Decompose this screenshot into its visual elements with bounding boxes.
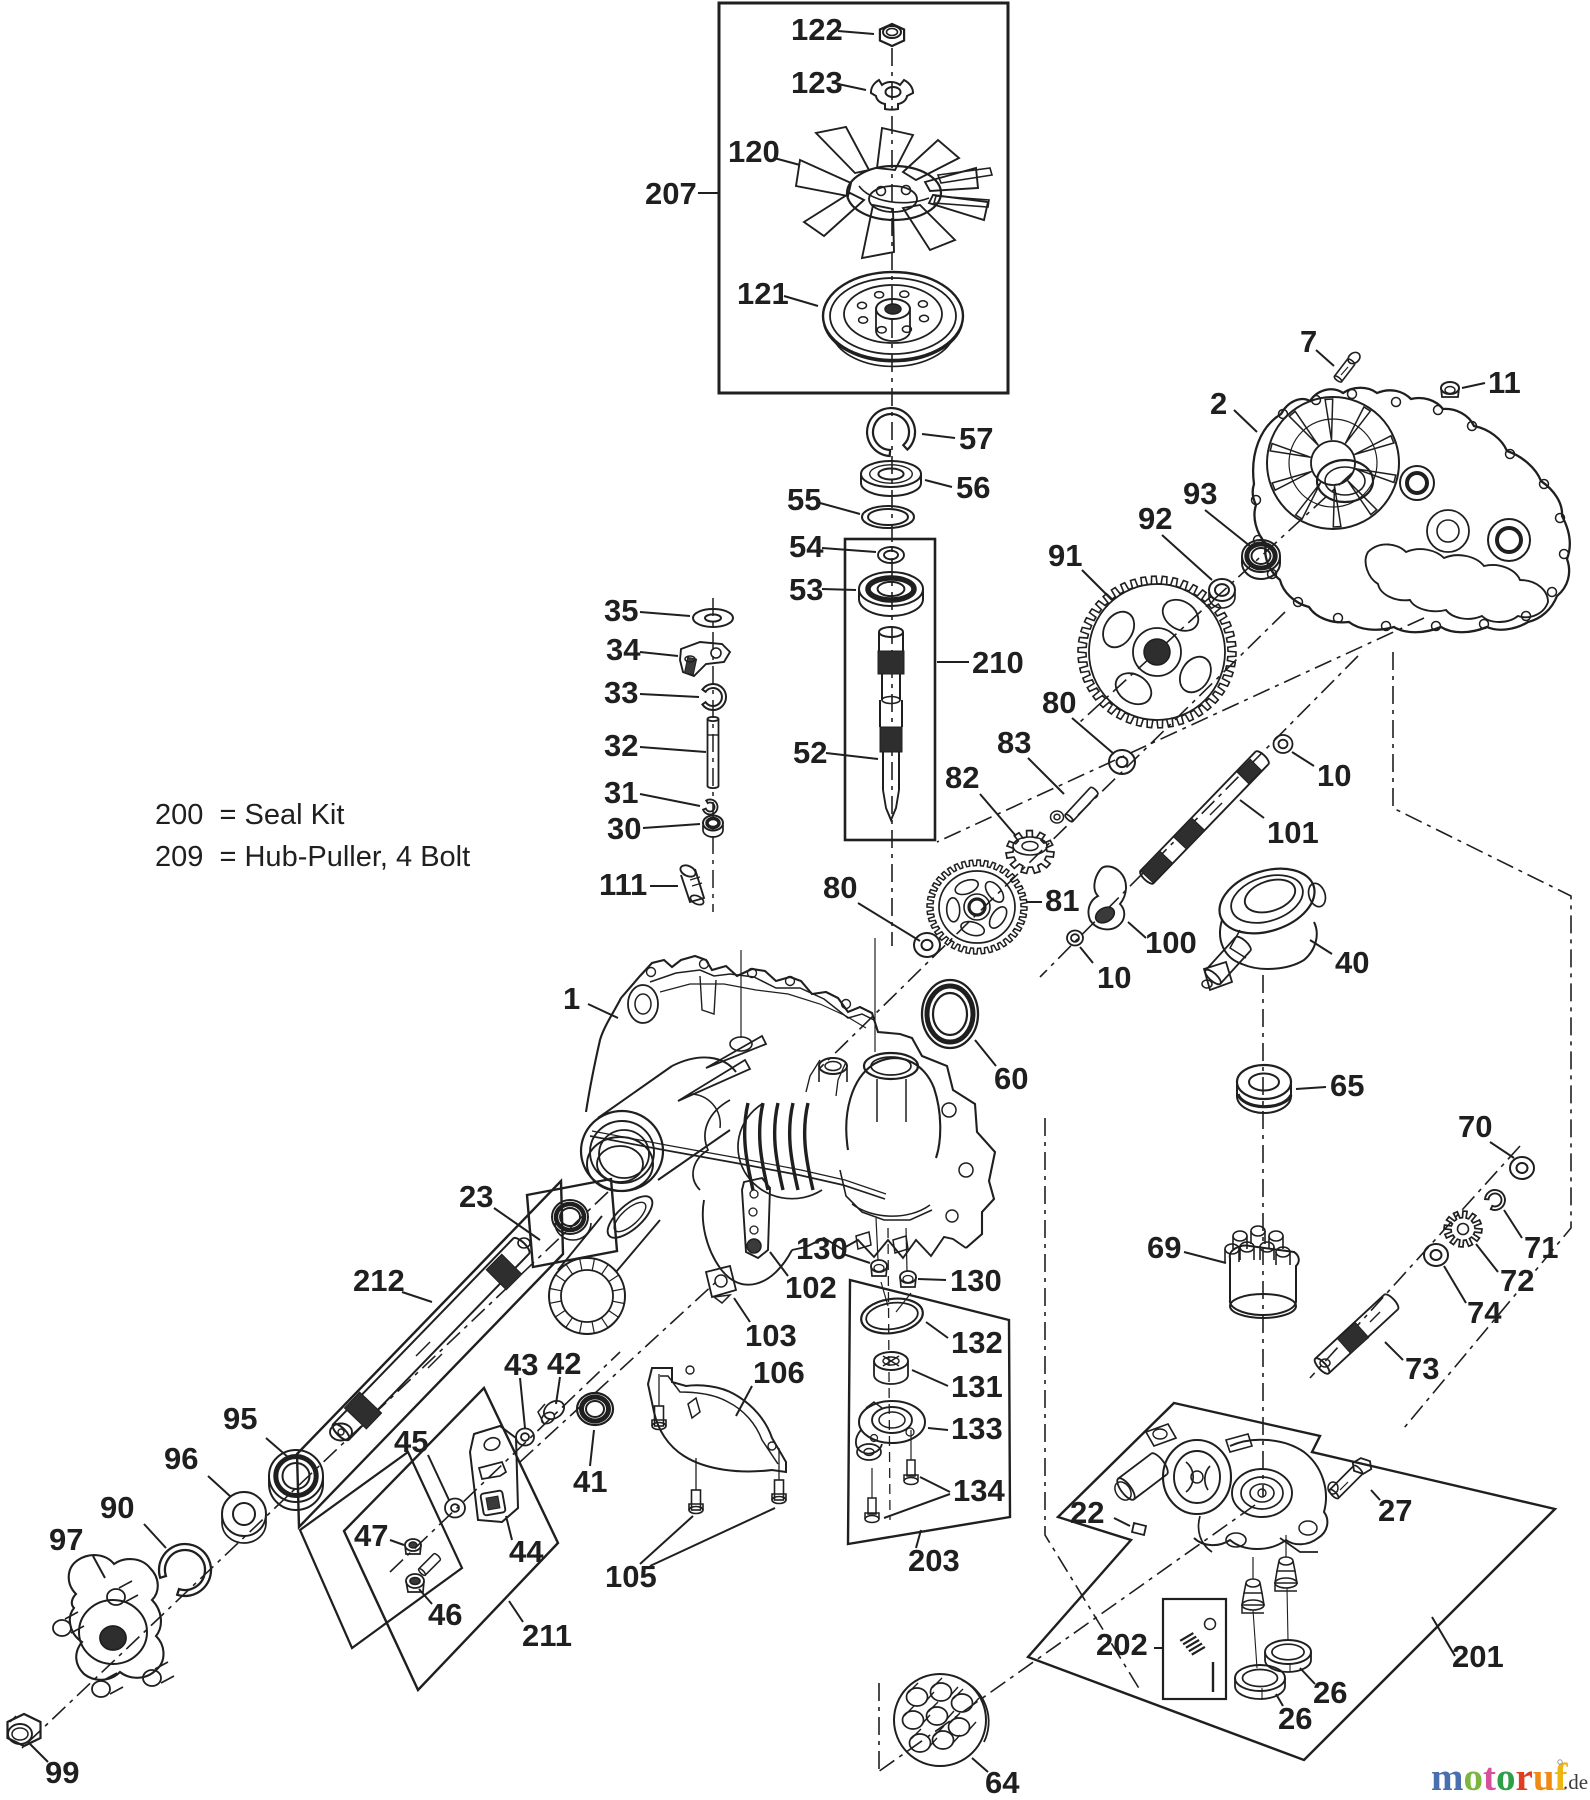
svg-text:7: 7 <box>1300 324 1317 359</box>
svg-text:131: 131 <box>951 1369 1003 1404</box>
svg-text:103: 103 <box>745 1318 797 1353</box>
svg-text:121: 121 <box>737 276 789 311</box>
svg-text:40: 40 <box>1335 945 1369 980</box>
svg-text:105: 105 <box>605 1559 657 1594</box>
svg-text:90: 90 <box>100 1490 134 1525</box>
svg-text:202: 202 <box>1096 1627 1148 1662</box>
svg-text:53: 53 <box>789 572 823 607</box>
svg-text:203: 203 <box>908 1543 960 1578</box>
svg-text:132: 132 <box>951 1325 1003 1360</box>
svg-text:26: 26 <box>1278 1701 1312 1736</box>
svg-text:23: 23 <box>459 1179 493 1214</box>
svg-text:42: 42 <box>547 1346 581 1381</box>
svg-text:100: 100 <box>1145 925 1197 960</box>
svg-text:209 = Hub-Puller, 4 Bolt: 209 = Hub-Puller, 4 Bolt <box>155 841 470 873</box>
svg-text:32: 32 <box>604 728 638 763</box>
svg-text:65: 65 <box>1330 1068 1364 1103</box>
svg-text:11: 11 <box>1488 365 1521 400</box>
svg-text:47: 47 <box>354 1518 388 1553</box>
svg-text:60: 60 <box>994 1061 1028 1096</box>
svg-text:102: 102 <box>785 1270 837 1305</box>
svg-text:35: 35 <box>604 593 638 628</box>
svg-text:71: 71 <box>1524 1230 1558 1265</box>
svg-text:31: 31 <box>604 775 638 810</box>
svg-text:83: 83 <box>997 725 1031 760</box>
svg-text:134: 134 <box>953 1473 1005 1508</box>
svg-text:73: 73 <box>1405 1351 1439 1386</box>
svg-text:34: 34 <box>606 632 641 667</box>
svg-text:210: 210 <box>972 645 1024 680</box>
svg-text:130: 130 <box>796 1231 848 1266</box>
svg-text:96: 96 <box>164 1441 198 1476</box>
svg-text:30: 30 <box>607 811 641 846</box>
svg-text:72: 72 <box>1500 1263 1534 1298</box>
svg-text:74: 74 <box>1467 1295 1502 1330</box>
svg-text:80: 80 <box>1042 685 1076 720</box>
svg-text:91: 91 <box>1048 538 1082 573</box>
svg-text:95: 95 <box>223 1401 257 1436</box>
svg-text:93: 93 <box>1183 476 1217 511</box>
svg-text:80: 80 <box>823 870 857 905</box>
svg-text:111: 111 <box>599 867 647 902</box>
svg-text:106: 106 <box>753 1355 805 1390</box>
svg-text:101: 101 <box>1267 815 1319 850</box>
svg-text:.de: .de <box>1563 1770 1588 1794</box>
svg-text:44: 44 <box>509 1534 544 1569</box>
svg-text:200 = Seal Kit: 200 = Seal Kit <box>155 799 344 831</box>
svg-text:120: 120 <box>728 134 780 169</box>
svg-text:motoruf: motoruf <box>1431 1756 1569 1799</box>
svg-text:92: 92 <box>1138 501 1172 536</box>
svg-text:70: 70 <box>1458 1109 1492 1144</box>
svg-text:130: 130 <box>950 1263 1002 1298</box>
svg-text:57: 57 <box>959 421 993 456</box>
svg-text:81: 81 <box>1045 883 1079 918</box>
svg-text:97: 97 <box>49 1522 83 1557</box>
svg-text:41: 41 <box>573 1464 607 1499</box>
svg-text:207: 207 <box>645 176 697 211</box>
svg-text:54: 54 <box>789 529 824 564</box>
svg-text:43: 43 <box>504 1347 538 1382</box>
svg-text:82: 82 <box>945 760 979 795</box>
svg-text:52: 52 <box>793 735 827 770</box>
svg-text:99: 99 <box>45 1755 79 1790</box>
svg-text:133: 133 <box>951 1411 1003 1446</box>
svg-text:22: 22 <box>1070 1495 1104 1530</box>
svg-text:33: 33 <box>604 675 638 710</box>
svg-text:55: 55 <box>787 482 821 517</box>
svg-text:211: 211 <box>522 1618 572 1653</box>
svg-text:26: 26 <box>1313 1675 1347 1710</box>
svg-text:212: 212 <box>353 1263 405 1298</box>
svg-text:64: 64 <box>985 1765 1020 1800</box>
svg-text:123: 123 <box>791 65 843 100</box>
svg-text:45: 45 <box>394 1424 428 1459</box>
svg-text:10: 10 <box>1317 758 1351 793</box>
svg-text:201: 201 <box>1452 1639 1504 1674</box>
svg-text:56: 56 <box>956 470 990 505</box>
svg-text:69: 69 <box>1147 1230 1181 1265</box>
svg-text:122: 122 <box>791 12 843 47</box>
svg-text:46: 46 <box>428 1597 462 1632</box>
svg-text:1: 1 <box>563 981 580 1016</box>
svg-text:10: 10 <box>1097 960 1131 995</box>
svg-text:2: 2 <box>1210 386 1227 421</box>
svg-text:27: 27 <box>1378 1493 1412 1528</box>
